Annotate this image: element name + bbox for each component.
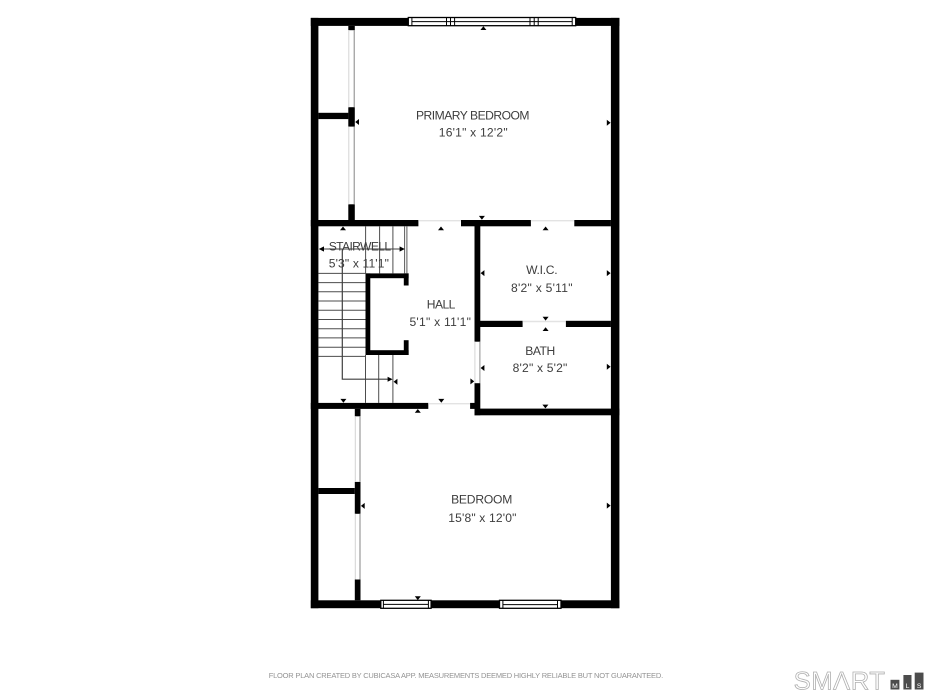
svg-text:BEDROOM: BEDROOM: [451, 492, 512, 506]
svg-text:M: M: [892, 683, 898, 690]
svg-text:16'1" x 12'2": 16'1" x 12'2": [439, 125, 508, 139]
svg-text:PRIMARY BEDROOM: PRIMARY BEDROOM: [416, 108, 529, 122]
svg-text:FLOOR PLAN CREATED BY CUBICASA: FLOOR PLAN CREATED BY CUBICASA APP. MEAS…: [269, 671, 663, 680]
svg-text:S: S: [917, 683, 922, 690]
svg-text:5'3" x 11'1": 5'3" x 11'1": [329, 256, 389, 270]
svg-text:8'2" x 5'2": 8'2" x 5'2": [513, 361, 568, 375]
svg-text:BATH: BATH: [525, 344, 555, 358]
svg-text:L: L: [906, 683, 910, 690]
svg-text:5'1" x 11'1": 5'1" x 11'1": [409, 315, 471, 329]
svg-text:STAIRWELL: STAIRWELL: [329, 239, 392, 253]
svg-text:HALL: HALL: [427, 297, 456, 311]
svg-text:8'2" x 5'11": 8'2" x 5'11": [511, 281, 573, 295]
svg-text:SMΛRT: SMΛRT: [794, 668, 886, 696]
svg-text:W.I.C.: W.I.C.: [526, 263, 557, 277]
svg-text:15'8" x 12'0": 15'8" x 12'0": [448, 511, 516, 525]
